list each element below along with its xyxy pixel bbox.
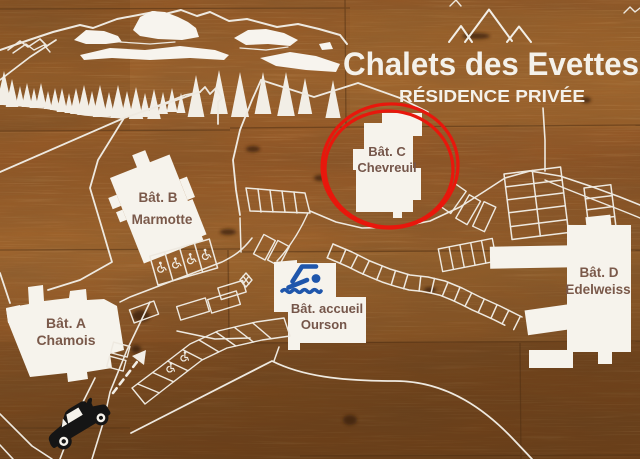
svg-text:Chamois: Chamois	[36, 332, 95, 348]
svg-text:Ourson: Ourson	[301, 317, 347, 332]
svg-text:Bât. B: Bât. B	[138, 190, 177, 205]
svg-text:Bât. D: Bât. D	[579, 265, 618, 280]
svg-text:RÉSIDENCE PRIVÉE: RÉSIDENCE PRIVÉE	[399, 85, 585, 106]
svg-text:Bât. C: Bât. C	[368, 144, 406, 159]
svg-text:Marmotte: Marmotte	[132, 212, 193, 227]
svg-text:Chevreuil: Chevreuil	[357, 160, 416, 175]
svg-text:Bât. A: Bât. A	[46, 315, 86, 331]
svg-text:Chalets des Evettes: Chalets des Evettes	[343, 46, 639, 82]
svg-text:Bât. accueil: Bât. accueil	[291, 301, 363, 316]
svg-text:Edelweiss: Edelweiss	[565, 282, 630, 297]
